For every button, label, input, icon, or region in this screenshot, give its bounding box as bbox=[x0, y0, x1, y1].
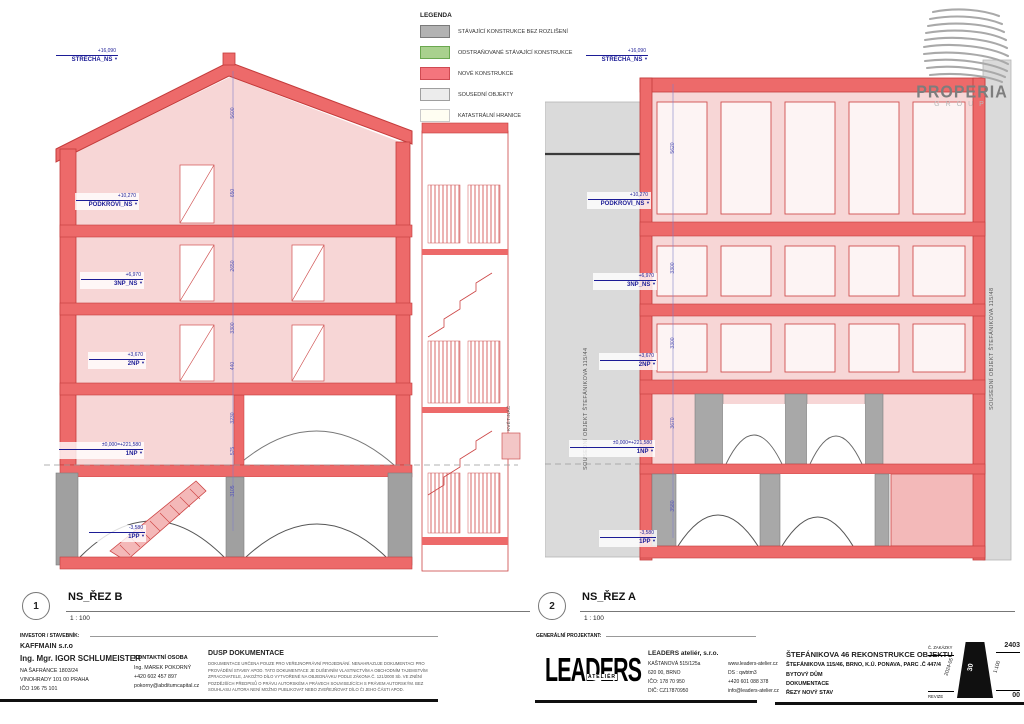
legend-swatch-neighbor bbox=[420, 88, 450, 101]
section-a-number: 2 bbox=[538, 592, 566, 620]
chimney bbox=[223, 53, 235, 65]
leaders-web: www.leaders-atelier.cz bbox=[728, 660, 778, 668]
level-marker-icon: ▼ bbox=[139, 280, 143, 285]
properia-logo-icon bbox=[903, 6, 1021, 84]
investor-person: Ing. Mgr. IGOR SCHLUMEISTER bbox=[20, 654, 141, 663]
level-label: -3,580 1PP ▼ bbox=[599, 530, 657, 547]
stamp-wedge-icon bbox=[957, 642, 993, 698]
project-type: BYTOVÝ DŮM bbox=[786, 672, 823, 678]
slab-2np bbox=[640, 380, 985, 394]
dimension-text: 3670 bbox=[670, 408, 676, 438]
slab-1np bbox=[640, 464, 985, 474]
slab-1pp bbox=[640, 546, 985, 558]
section-b-line bbox=[66, 611, 530, 612]
legend-item: STÁVAJÍCÍ KONSTRUKCE BEZ ROZLIŠENÍ bbox=[420, 25, 625, 38]
investor-addr1: NA ŠAFRÁNCE 1803/24 bbox=[20, 667, 78, 676]
level-label: ±0,000=+221,580 1NP ▼ bbox=[569, 440, 655, 457]
dusp-heading: DUSP DOKUMENTACE bbox=[208, 650, 284, 657]
stamp-revision-label: REVIZE bbox=[928, 691, 954, 699]
stamp-order-label: Č. ZAKÁZKY bbox=[928, 645, 954, 656]
investor-heading: INVESTOR / STAVEBNÍK: bbox=[20, 633, 79, 639]
legend-item: ODSTRAŇOVANÉ STÁVAJÍCÍ KONSTRUKCE bbox=[420, 46, 625, 59]
dimension-text: 3105 bbox=[230, 476, 236, 506]
dimension-text: 650 bbox=[230, 178, 236, 208]
level-label: +16,090 STŘECHA_NS ▼ bbox=[55, 48, 119, 65]
leaders-ico: IČO: 178 70 950 bbox=[648, 678, 685, 686]
section-b-scale: 1 : 100 bbox=[70, 615, 90, 622]
vault-1np bbox=[234, 395, 396, 465]
basement-wall-right bbox=[388, 473, 412, 565]
titleblock-rule-right bbox=[775, 702, 1024, 705]
legend: LEGENDA STÁVAJÍCÍ KONSTRUKCE BEZ ROZLIŠE… bbox=[420, 12, 625, 130]
dimension-text: 3230 bbox=[230, 403, 236, 433]
level-marker-icon: ▼ bbox=[139, 450, 143, 455]
project-doc: DOKUMENTACE bbox=[786, 681, 829, 687]
neighbor-right-label: SOUSEDNÍ OBJEKT ŠTEFÁNIKOVA 115/48 bbox=[989, 130, 995, 410]
contact-heading: KONTAKTNÍ OSOBA bbox=[134, 655, 188, 661]
neighbor-left bbox=[545, 102, 640, 557]
windows-3np bbox=[657, 246, 965, 296]
leaders-logo: LEADERS ATELIÉR bbox=[545, 648, 643, 694]
properia-logo: PROPERIA GROUP bbox=[903, 6, 1021, 110]
drawing-stamp: Č. ZAKÁZKY 2403 2024-05 30 1:100 REVIZE … bbox=[928, 642, 1020, 700]
section-a-title: NS_ŘEZ A bbox=[582, 591, 636, 603]
stamp-sheet-number: 30 bbox=[967, 663, 975, 672]
level-marker-icon: ▼ bbox=[134, 201, 138, 206]
level-label: +6,970 3NP_NS ▼ bbox=[80, 272, 144, 289]
neighbor-right bbox=[983, 60, 1011, 560]
slab-podkrovi bbox=[640, 222, 985, 236]
planter-box bbox=[502, 433, 520, 459]
level-marker-icon: ▼ bbox=[141, 360, 145, 365]
windows-2np bbox=[657, 324, 965, 372]
slab-1np bbox=[60, 465, 412, 477]
slab-3np bbox=[60, 303, 412, 315]
level-marker-icon: ▼ bbox=[652, 281, 656, 286]
level-label: +10,270 PODKROVÍ_NS ▼ bbox=[587, 192, 651, 209]
stair-tower bbox=[422, 123, 508, 571]
slab-1pp bbox=[60, 557, 412, 569]
stamp-revision-value: 00 bbox=[996, 690, 1020, 699]
divider bbox=[606, 636, 756, 637]
dimension-text: 3300 bbox=[670, 253, 676, 283]
properia-group-label: GROUP bbox=[903, 101, 1021, 108]
legend-title: LEGENDA bbox=[420, 12, 625, 19]
leaders-phone: +420 601 088 378 bbox=[728, 678, 768, 686]
leaders-ds: DS : qwbtm3 bbox=[728, 669, 757, 677]
level-label: -3,580 1PP ▼ bbox=[88, 525, 146, 542]
level-marker-icon: ▼ bbox=[652, 361, 656, 366]
level-marker-icon: ▼ bbox=[650, 448, 654, 453]
dusp-disclaimer: DOKUMENTACE URČENA POUZE PRO VEŘEJNOPRÁV… bbox=[208, 661, 436, 694]
level-label: +10,270 PODKROVÍ_NS ▼ bbox=[75, 193, 139, 210]
level-label: ±0,000=+221,580 1NP ▼ bbox=[58, 442, 144, 459]
ground-floor-structure bbox=[695, 394, 883, 464]
dimension-text: 3300 bbox=[230, 313, 236, 343]
properia-name: PROPERIA bbox=[903, 83, 1021, 103]
level-marker-icon: ▼ bbox=[646, 200, 650, 205]
legend-swatch-cadastral bbox=[420, 109, 450, 122]
contact-name: Ing. MAREK POKORNÝ bbox=[134, 664, 191, 673]
level-marker-icon: ▼ bbox=[652, 538, 656, 543]
legend-swatch-removed bbox=[420, 46, 450, 59]
room-2np bbox=[76, 315, 396, 383]
project-address: ŠTEFÁNIKOVA 115/46, BRNO, K.Ú. PONAVA, P… bbox=[786, 662, 941, 668]
room-3np bbox=[76, 237, 396, 303]
legend-item: NOVÉ KONSTRUKCE bbox=[420, 67, 625, 80]
level-label: +3,670 2NP ▼ bbox=[599, 353, 657, 370]
project-stage: ŘEZY NOVÝ STAV bbox=[786, 690, 833, 696]
investor-name: KAFFMAIN s.r.o bbox=[20, 643, 73, 650]
divider bbox=[90, 636, 438, 637]
section-a-line bbox=[580, 611, 1015, 612]
legend-swatch-existing bbox=[420, 25, 450, 38]
dimension-text: 575 bbox=[230, 436, 236, 466]
leaders-logo-subtext: ATELIÉR bbox=[587, 674, 617, 680]
neighbor-left-label: SOUSEDNÍ OBJEKT ŠTEFÁNIKOVA 115/44 bbox=[583, 170, 589, 470]
basement-wall-left bbox=[56, 473, 78, 565]
stamp-date: 2024-05 bbox=[943, 657, 954, 676]
wall-left bbox=[640, 78, 652, 560]
stamp-scale: 1:100 bbox=[992, 660, 1002, 674]
section-b-title: NS_ŘEZ B bbox=[68, 591, 122, 603]
generalni-heading: GENERÁLNÍ PROJEKTANT: bbox=[536, 633, 601, 639]
legend-item: KATASTRÁLNÍ HRANICE bbox=[420, 109, 625, 122]
wall-right bbox=[973, 78, 985, 560]
slab-3np bbox=[640, 304, 985, 316]
investor-ico: IČO 196 75 101 bbox=[20, 685, 57, 694]
investor-addr2: VINOHRADY 101 00 PRAHA bbox=[20, 676, 89, 685]
leaders-email: info@leaders-atelier.cz bbox=[728, 687, 779, 695]
contact-phone: +420 602 457 897 bbox=[134, 673, 177, 682]
dimension-text: 2650 bbox=[230, 251, 236, 281]
section-b-number: 1 bbox=[22, 592, 50, 620]
level-marker-icon: ▼ bbox=[114, 56, 118, 61]
leaders-addr1: KAŠTANOVÁ 515/125a bbox=[648, 660, 700, 668]
level-marker-icon: ▼ bbox=[141, 533, 145, 538]
level-marker-icon: ▼ bbox=[644, 56, 648, 61]
level-label: +6,970 3NP_NS ▼ bbox=[593, 273, 657, 290]
dimension-text: 5620 bbox=[670, 133, 676, 163]
stamp-order-number: 2403 bbox=[996, 642, 1020, 653]
contact-email: pokorny@abditumcapital.cz bbox=[134, 682, 199, 691]
level-label: +3,670 2NP ▼ bbox=[88, 352, 146, 369]
dimension-text: 5600 bbox=[230, 98, 236, 128]
basement-structure bbox=[652, 474, 973, 546]
dimension-text: 3580 bbox=[670, 491, 676, 521]
leaders-addr2: 620 00, BRNO bbox=[648, 669, 681, 677]
dimension-text: 3300 bbox=[670, 328, 676, 358]
section-a-scale: 1 : 100 bbox=[584, 615, 604, 622]
legend-swatch-new bbox=[420, 67, 450, 80]
dimension-text: 440 bbox=[230, 351, 236, 381]
titleblock-rule-left bbox=[0, 699, 438, 702]
titleblock-rule-mid bbox=[535, 700, 757, 703]
attic-windows bbox=[657, 102, 965, 214]
slab-2np bbox=[60, 383, 412, 395]
leaders-name: LEADERS ateliér, s.r.o. bbox=[648, 650, 718, 657]
slab-podkrovi bbox=[60, 225, 412, 237]
legend-item: SOUSEDNÍ OBJEKTY bbox=[420, 88, 625, 101]
leaders-logo-text: LEADERS bbox=[545, 650, 641, 690]
leaders-dic: DIČ: CZ17870950 bbox=[648, 687, 688, 695]
planter-annotation: KVĚTINÁČ bbox=[506, 373, 511, 431]
